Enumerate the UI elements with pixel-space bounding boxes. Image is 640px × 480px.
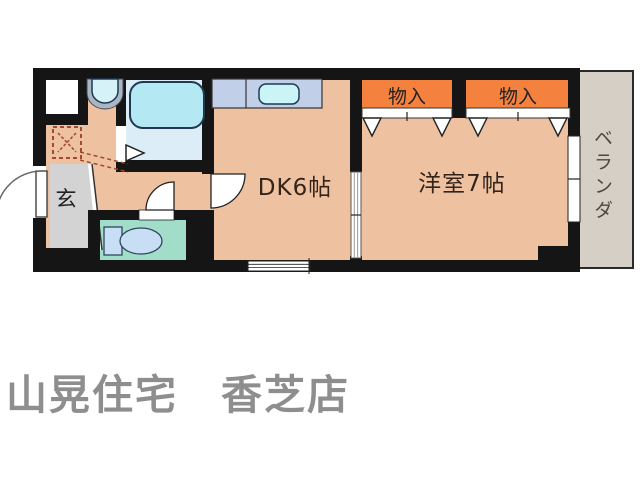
bathroom-door-opening <box>116 126 126 162</box>
wall-meterbox-bottom <box>40 114 88 125</box>
floor-plan-page: DK6帖 洋室7帖 物入 物入 ベランダ 玄 山晃住宅 香芝店 <box>0 0 640 480</box>
veranda-label: ベランダ <box>589 128 616 224</box>
agency-name: 山晃住宅 香芝店 <box>6 361 350 421</box>
dining-kitchen-label: DK6帖 <box>240 168 350 202</box>
wall-entrance-bottom <box>46 248 98 262</box>
entry-door-leaf <box>36 171 47 217</box>
entrance-label: 玄 <box>53 183 79 213</box>
western-room-label: 洋室7帖 <box>402 164 522 198</box>
toilet <box>104 227 162 255</box>
toilet-tank <box>104 227 122 255</box>
wall-top <box>33 68 580 80</box>
veranda-window <box>568 136 580 222</box>
wall-between-storages <box>452 68 466 118</box>
toilet-bowl <box>120 228 162 254</box>
storage-left-label: 物入 <box>372 82 442 109</box>
wall-pillar-southeast <box>538 246 570 262</box>
toilet-door-opening <box>139 210 174 220</box>
kitchen-sink <box>259 84 299 104</box>
bathtub <box>130 82 204 128</box>
dk-western-sliding-door <box>351 172 361 258</box>
wall-bath-bottom <box>116 160 214 172</box>
washbasin <box>87 79 123 109</box>
storage-right-label: 物入 <box>483 82 553 109</box>
kitchen-counter <box>212 79 322 108</box>
wall-left-lower <box>33 218 46 272</box>
wall-toilet-top-right <box>174 210 188 220</box>
wall-right-upper <box>568 68 580 136</box>
wall-dk-western-upper <box>350 68 362 172</box>
wall-toilet-right <box>186 210 214 262</box>
